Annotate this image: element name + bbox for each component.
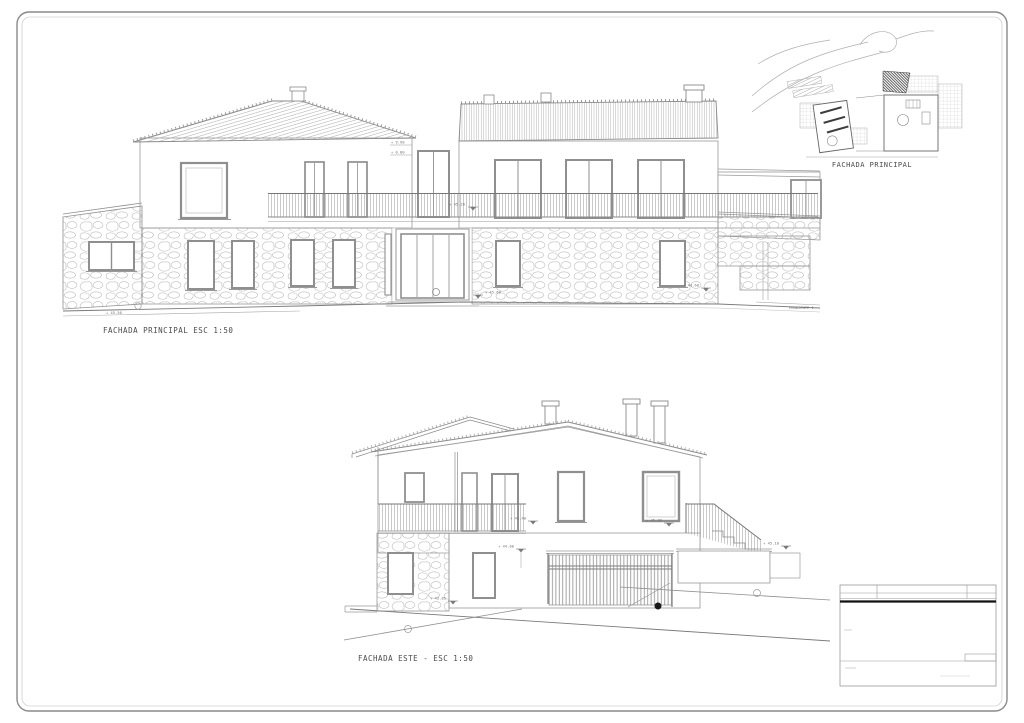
elevation-fachada-este: + 45.40 + 45.80 + 44.00 + 43.85 + 45.10 … xyxy=(344,399,830,663)
entrance-door xyxy=(385,228,479,306)
chimney xyxy=(290,87,306,101)
window xyxy=(229,241,257,290)
window xyxy=(86,242,137,272)
spot-level-label: + 45.20 xyxy=(449,203,465,207)
spot-level-label: + 44.00 xyxy=(498,545,514,549)
window xyxy=(185,241,217,291)
level-label: + 9.90 xyxy=(391,141,405,145)
window xyxy=(473,553,495,598)
title-block-border xyxy=(840,585,996,686)
window xyxy=(178,163,231,220)
ground-level-label: + 45.50 xyxy=(106,311,122,315)
window xyxy=(555,472,587,523)
window xyxy=(493,241,523,288)
spot-level-label: + 44.60 xyxy=(683,284,699,288)
spot-level-marker xyxy=(781,546,791,550)
low-wall-left xyxy=(345,606,377,612)
window xyxy=(288,240,317,288)
caption-fachada-este: FACHADA ESTE - ESC 1:50 xyxy=(358,654,473,663)
spot-level-label: + 43.85 xyxy=(430,597,446,601)
chimney xyxy=(651,401,668,443)
roof-right xyxy=(459,100,718,142)
level-label: + 0.80 xyxy=(391,151,405,155)
elevation-fachada-principal: + 9.90 + 0.80 xyxy=(63,85,821,335)
site-hatched-strips xyxy=(787,75,833,99)
spot-level-label: + 45.10 xyxy=(763,542,779,546)
dark-roof-hatch xyxy=(883,71,910,93)
roof-left xyxy=(133,100,416,143)
window xyxy=(657,241,688,288)
spot-level-label: + 45.60 xyxy=(485,291,501,295)
caption-site-plan: FACHADA PRINCIPAL xyxy=(832,161,912,169)
chimney xyxy=(684,85,704,102)
caption-fachada-principal: FACHADA PRINCIPAL ESC 1:50 xyxy=(103,326,233,335)
window xyxy=(405,473,424,502)
window xyxy=(330,240,358,289)
garage-door xyxy=(546,551,674,607)
terrace-wall xyxy=(676,549,800,583)
spot-level-label: + 45.40 xyxy=(510,517,526,521)
window xyxy=(643,472,679,521)
drawing-canvas: + 9.90 + 0.80 xyxy=(0,0,1024,723)
stone-retaining-right xyxy=(718,212,820,300)
window xyxy=(388,553,413,594)
stone-annex-left xyxy=(63,203,142,309)
chimney xyxy=(623,399,640,436)
site-plan: FACHADA PRINCIPAL xyxy=(752,31,962,169)
title-block xyxy=(840,585,996,686)
pendiente-label: PENDIENTE 1 xyxy=(789,306,814,310)
drawing-sheet: + 9.90 + 0.80 xyxy=(0,0,1024,723)
spot-level-label: + 45.80 xyxy=(646,519,662,523)
chimney xyxy=(542,401,559,424)
balcony-railing xyxy=(378,504,526,534)
terrain-dot xyxy=(655,603,662,610)
